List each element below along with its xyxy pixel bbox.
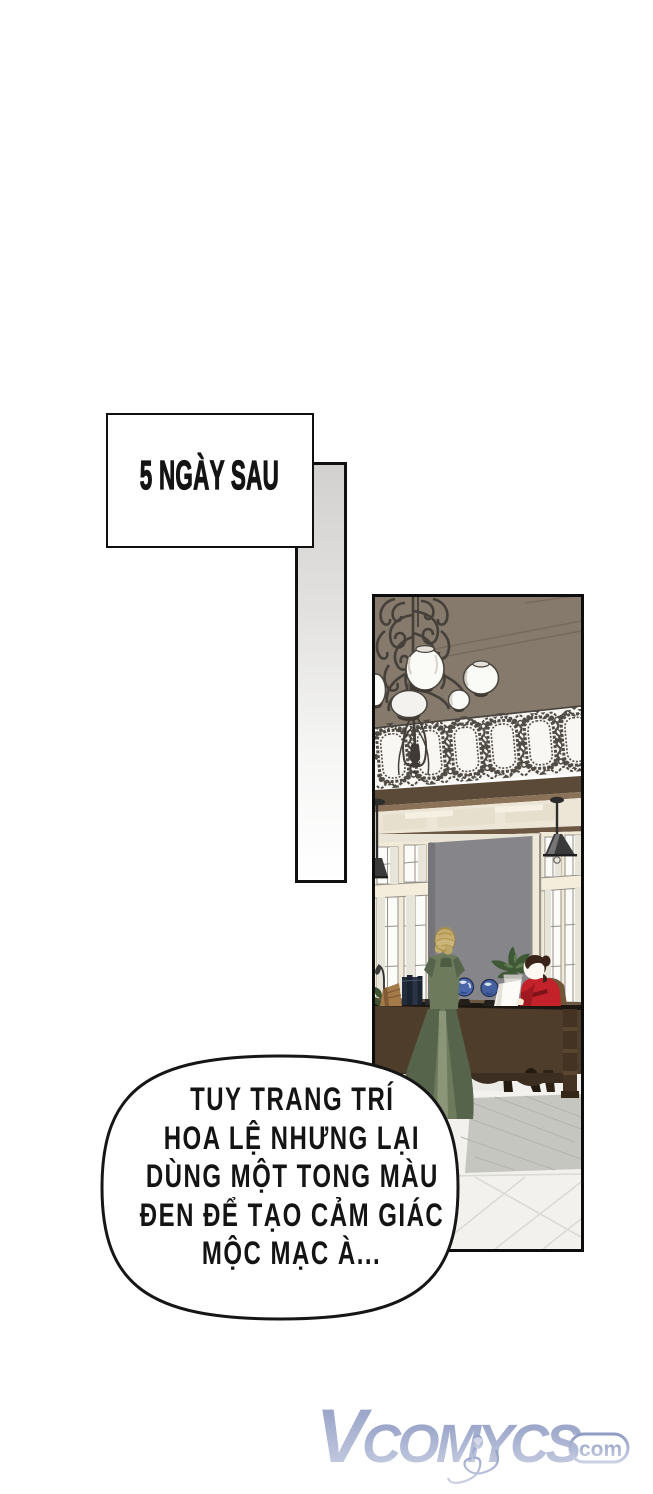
svg-text:com: com — [579, 1438, 622, 1461]
svg-text:COMYCS: COMYCS — [362, 1414, 581, 1474]
